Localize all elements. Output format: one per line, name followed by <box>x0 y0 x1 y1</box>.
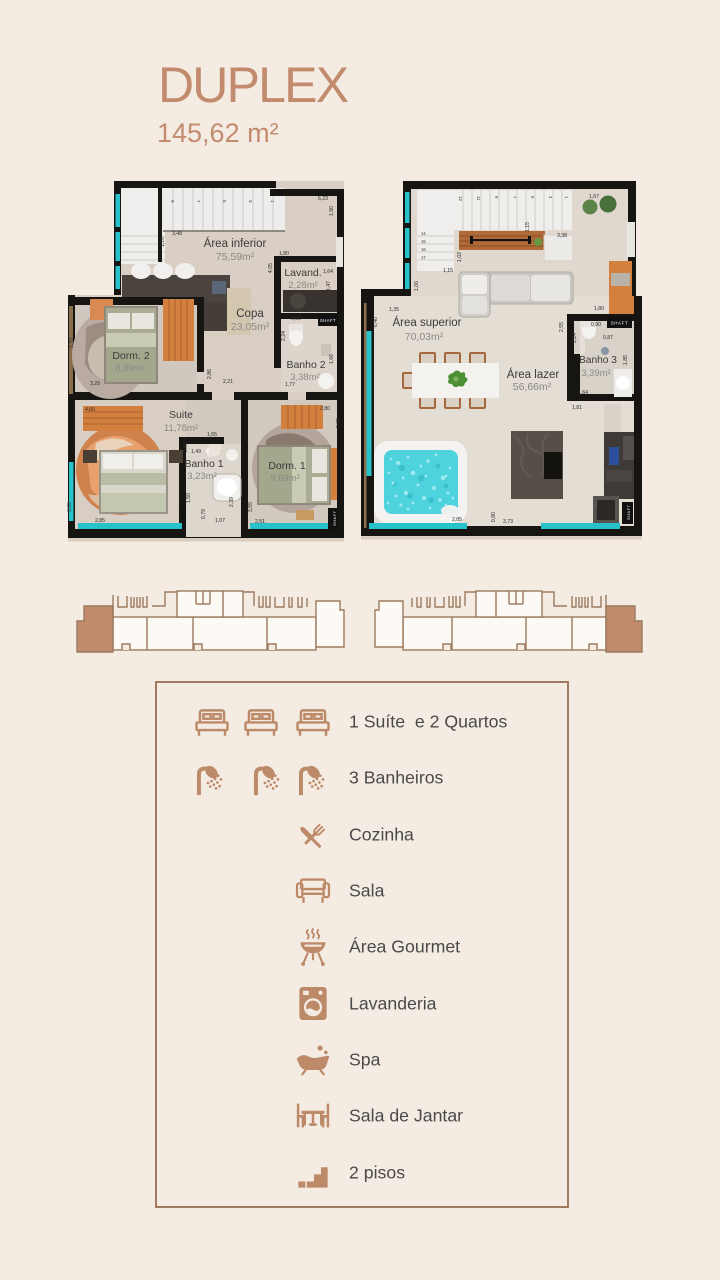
svg-text:1,64: 1,64 <box>578 390 588 396</box>
svg-text:2,39: 2,39 <box>229 497 235 507</box>
svg-text:2,24: 2,24 <box>281 331 287 341</box>
svg-text:2,85: 2,85 <box>452 517 462 523</box>
svg-text:1,67: 1,67 <box>589 194 599 200</box>
svg-text:1,80: 1,80 <box>279 251 289 257</box>
svg-text:1,35: 1,35 <box>389 307 399 313</box>
svg-text:Banho 3: Banho 3 <box>579 355 617 366</box>
svg-text:1,85: 1,85 <box>623 355 629 365</box>
svg-text:0,87: 0,87 <box>603 335 613 341</box>
svg-text:Dorm. 2: Dorm. 2 <box>112 350 150 362</box>
svg-text:1,02: 1,02 <box>457 252 463 262</box>
svg-text:2,86: 2,86 <box>207 369 213 379</box>
svg-text:1,77: 1,77 <box>285 382 295 388</box>
svg-text:0,90: 0,90 <box>591 322 601 328</box>
svg-text:Área inferior: Área inferior <box>204 237 267 250</box>
svg-text:6,40: 6,40 <box>373 317 379 327</box>
svg-text:8,89m²: 8,89m² <box>115 363 145 374</box>
svg-text:23,05m²: 23,05m² <box>231 321 270 333</box>
svg-text:3,55: 3,55 <box>248 502 254 512</box>
svg-text:1,06: 1,06 <box>414 281 420 291</box>
svg-text:0,80: 0,80 <box>491 512 497 522</box>
svg-text:14: 14 <box>421 231 426 236</box>
svg-text:SHAFT: SHAFT <box>611 321 629 326</box>
svg-text:1,50: 1,50 <box>186 493 192 503</box>
svg-text:Área lazer: Área lazer <box>507 368 560 381</box>
svg-text:3,38: 3,38 <box>557 233 567 239</box>
svg-text:Suite: Suite <box>169 409 193 421</box>
svg-text:0,79: 0,79 <box>201 509 207 519</box>
svg-text:0,90: 0,90 <box>291 316 301 322</box>
svg-text:1,15: 1,15 <box>443 268 453 274</box>
svg-text:Banho 2: Banho 2 <box>286 359 325 371</box>
svg-text:3,23m²: 3,23m² <box>187 471 217 482</box>
svg-text:1,80: 1,80 <box>594 306 604 312</box>
svg-text:2,55: 2,55 <box>559 322 565 332</box>
svg-text:Área superior: Área superior <box>392 316 461 329</box>
svg-text:3,48: 3,48 <box>172 231 182 237</box>
svg-text:56,66m²: 56,66m² <box>513 381 552 393</box>
svg-text:9,69m²: 9,69m² <box>270 473 300 484</box>
svg-text:2,28m²: 2,28m² <box>288 280 318 291</box>
svg-text:1,90: 1,90 <box>329 206 335 216</box>
svg-text:11: 11 <box>476 196 481 201</box>
svg-text:1,07: 1,07 <box>215 518 225 524</box>
svg-text:2,70: 2,70 <box>69 338 75 348</box>
svg-text:Copa: Copa <box>236 308 264 320</box>
svg-text:75,59m²: 75,59m² <box>216 251 255 263</box>
svg-text:SHAFT: SHAFT <box>626 504 631 520</box>
svg-text:3,55: 3,55 <box>67 502 73 512</box>
svg-text:16: 16 <box>421 247 426 252</box>
svg-text:SHAFT: SHAFT <box>332 510 337 526</box>
svg-text:13: 13 <box>458 196 463 201</box>
svg-text:3,55: 3,55 <box>596 509 602 519</box>
svg-text:4,05: 4,05 <box>268 263 274 273</box>
svg-text:6,23: 6,23 <box>318 196 328 202</box>
svg-text:1,65: 1,65 <box>207 432 217 438</box>
svg-text:3,73: 3,73 <box>503 519 513 525</box>
svg-text:2,80: 2,80 <box>320 406 330 412</box>
svg-text:2,85: 2,85 <box>95 518 105 524</box>
svg-text:3,29: 3,29 <box>90 381 100 387</box>
svg-text:1,49: 1,49 <box>191 449 201 455</box>
svg-text:Dorm. 1: Dorm. 1 <box>268 460 306 472</box>
svg-text:2,70: 2,70 <box>336 418 342 428</box>
svg-text:2,24: 2,24 <box>572 333 578 343</box>
svg-text:1,64: 1,64 <box>323 269 333 275</box>
svg-text:2,21: 2,21 <box>223 379 233 385</box>
svg-text:3,39m²: 3,39m² <box>581 368 611 379</box>
svg-text:11,78m²: 11,78m² <box>164 423 198 434</box>
svg-text:1,81: 1,81 <box>572 405 582 411</box>
svg-text:SHAFT: SHAFT <box>320 318 336 323</box>
svg-text:70,03m²: 70,03m² <box>405 331 444 343</box>
svg-text:4,60: 4,60 <box>85 407 95 413</box>
svg-text:1,66: 1,66 <box>329 354 335 364</box>
svg-text:Banho 1: Banho 1 <box>184 458 223 470</box>
svg-text:1,47: 1,47 <box>326 281 332 291</box>
svg-text:1,15: 1,15 <box>525 222 531 232</box>
svg-text:Lavand.: Lavand. <box>284 267 321 279</box>
svg-text:1,16: 1,16 <box>160 237 166 247</box>
svg-text:2,51: 2,51 <box>255 519 265 525</box>
svg-text:15: 15 <box>421 239 426 244</box>
svg-text:2,55: 2,55 <box>183 442 189 452</box>
svg-text:17: 17 <box>421 255 426 260</box>
